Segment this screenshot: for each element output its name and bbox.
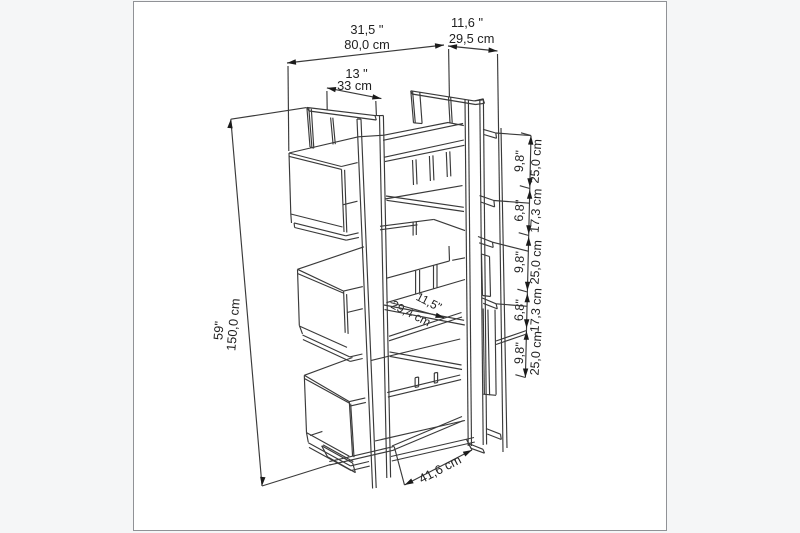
svg-text:11,6 ": 11,6 " [451,15,483,30]
svg-text:80,0 cm: 80,0 cm [344,37,390,52]
svg-text:25,0 cm: 25,0 cm [527,139,544,184]
svg-text:25,0 cm: 25,0 cm [527,240,544,285]
svg-text:25,0 cm: 25,0 cm [527,331,544,376]
svg-text:17,3 cm: 17,3 cm [527,288,544,333]
svg-text:6,8": 6,8" [512,299,527,322]
svg-text:17,3 cm: 17,3 cm [527,188,544,233]
svg-text:29,5 cm: 29,5 cm [449,31,495,46]
svg-text:150,0 cm: 150,0 cm [223,298,242,352]
svg-text:41,6 cm: 41,6 cm [416,452,463,486]
svg-text:9,8": 9,8" [512,251,527,274]
svg-text:31,5 ": 31,5 " [350,22,383,37]
svg-text:9,8": 9,8" [512,342,527,365]
svg-text:33 cm: 33 cm [337,78,372,93]
svg-text:9,8": 9,8" [512,150,527,173]
